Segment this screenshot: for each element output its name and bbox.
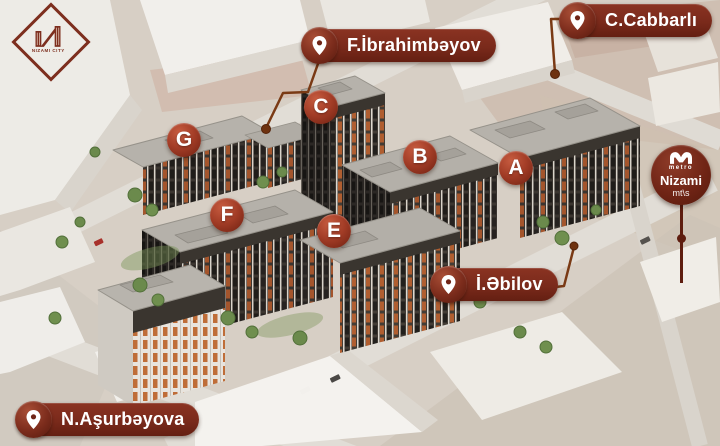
pin-stick-ball	[677, 234, 686, 243]
building-badge-b[interactable]: B	[403, 140, 437, 174]
street-label-ashurbeyova[interactable]: N.Aşurbəyova	[17, 403, 199, 436]
location-pin-icon	[430, 266, 467, 303]
site-render	[0, 0, 720, 446]
building-badge-c[interactable]: C	[304, 90, 338, 124]
building-sw-corner	[98, 265, 225, 406]
masterplan-viewport: F.İbrahimbəyov C.Cabbarlı İ.Əbilov N.Aşu…	[0, 0, 720, 446]
metro-m-icon	[670, 152, 692, 164]
location-pin-icon	[15, 401, 52, 438]
metro-station-pin[interactable]: metro Nizami mt\s	[649, 145, 719, 245]
street-label-abilov[interactable]: İ.Əbilov	[432, 268, 558, 301]
street-label-text: İ.Əbilov	[476, 274, 543, 295]
street-label-ibrahimbeyov[interactable]: F.İbrahimbəyov	[303, 29, 496, 62]
nizami-city-logo: NIZAMI CITY	[12, 4, 86, 76]
location-pin-icon	[559, 2, 596, 39]
location-pin-icon	[301, 27, 338, 64]
logo-wordmark: NIZAMI CITY	[32, 48, 65, 53]
metro-station-name: Nizami	[660, 174, 702, 187]
street-label-cabbarli[interactable]: C.Cabbarlı	[561, 4, 712, 37]
metro-disc: metro Nizami mt\s	[651, 145, 711, 205]
street-label-text: N.Aşurbəyova	[61, 409, 184, 430]
logo-towers-monogram-icon	[33, 25, 63, 47]
metro-word: metro	[669, 165, 693, 171]
street-label-text: F.İbrahimbəyov	[347, 35, 481, 56]
metro-station-suffix: mt\s	[673, 189, 690, 198]
building-badge-g[interactable]: G	[167, 123, 201, 157]
building-badge-e[interactable]: E	[317, 214, 351, 248]
building-badge-f[interactable]: F	[210, 198, 244, 232]
building-badge-a[interactable]: A	[499, 151, 533, 185]
street-label-text: C.Cabbarlı	[605, 10, 697, 31]
